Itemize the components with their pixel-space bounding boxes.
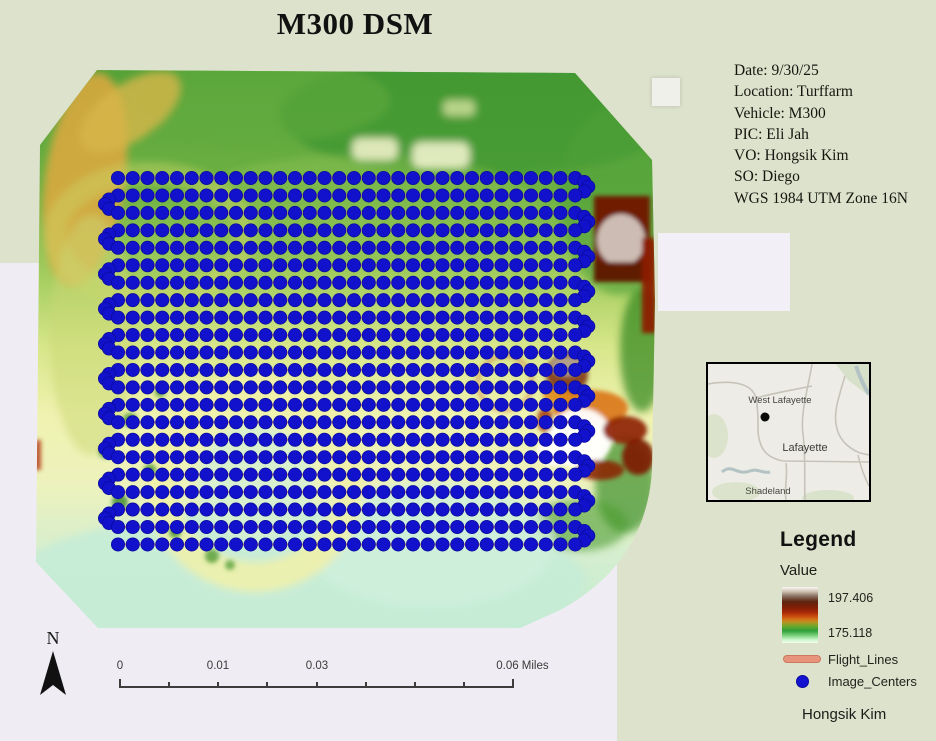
metadata-line-pic: PIC: Eli Jah [734,124,934,145]
inset-map-canvas: West Lafayette Lafayette Shadeland [708,364,869,500]
north-arrow: N [36,628,70,704]
scale-bar: 0 0.01 0.03 0.06 Miles [112,660,532,692]
flight-lines-symbol [783,655,821,663]
legend-image-centers-label: Image_Centers [828,674,917,689]
credit-text: Hongsik Kim [802,706,886,723]
inset-label-lafayette: Lafayette [782,442,827,454]
legend-ramp-max-value: 197.406 [828,591,873,605]
scale-label-0: 0 [117,660,123,672]
scale-label-3: 0.06 Miles [496,660,548,672]
small-white-square [652,78,680,106]
legend-value-label: Value [780,562,936,579]
legend-heading: Legend [780,528,936,552]
north-arrow-icon [38,649,68,699]
inset-site-marker-dot [761,413,770,422]
page: { "title": "M300 DSM", "metadata_panel":… [0,0,936,741]
page-title: M300 DSM [170,6,540,42]
metadata-panel: Date: 9/30/25 Location: Turffarm Vehicle… [734,60,934,209]
legend-panel: Legend Value 197.406 175.118 Flight_Line… [780,528,936,689]
scale-label-2: 0.03 [306,660,328,672]
metadata-line-vehicle: Vehicle: M300 [734,103,934,124]
inset-label-west-lafayette: West Lafayette [748,395,811,406]
scale-label-1: 0.01 [207,660,229,672]
inset-locator-map: West Lafayette Lafayette Shadeland [706,362,871,502]
side-frame-background [658,233,790,311]
image-centers-symbol [796,675,809,688]
north-arrow-label: N [36,628,70,649]
inset-label-shadeland: Shadeland [745,486,790,497]
metadata-line-so: SO: Diego [734,166,934,187]
scale-bar-line [120,686,513,688]
legend-item-image-centers: Image_Centers [780,673,936,689]
legend-item-flight-lines: Flight_Lines [780,651,936,667]
metadata-line-location: Location: Turffarm [734,81,934,102]
legend-color-ramp [782,587,818,643]
metadata-line-vo: VO: Hongsik Kim [734,145,934,166]
metadata-line-date: Date: 9/30/25 [734,60,934,81]
metadata-line-crs: WGS 1984 UTM Zone 16N [734,188,934,209]
legend-flight-lines-label: Flight_Lines [828,652,898,667]
legend-ramp-min-value: 175.118 [828,626,872,640]
